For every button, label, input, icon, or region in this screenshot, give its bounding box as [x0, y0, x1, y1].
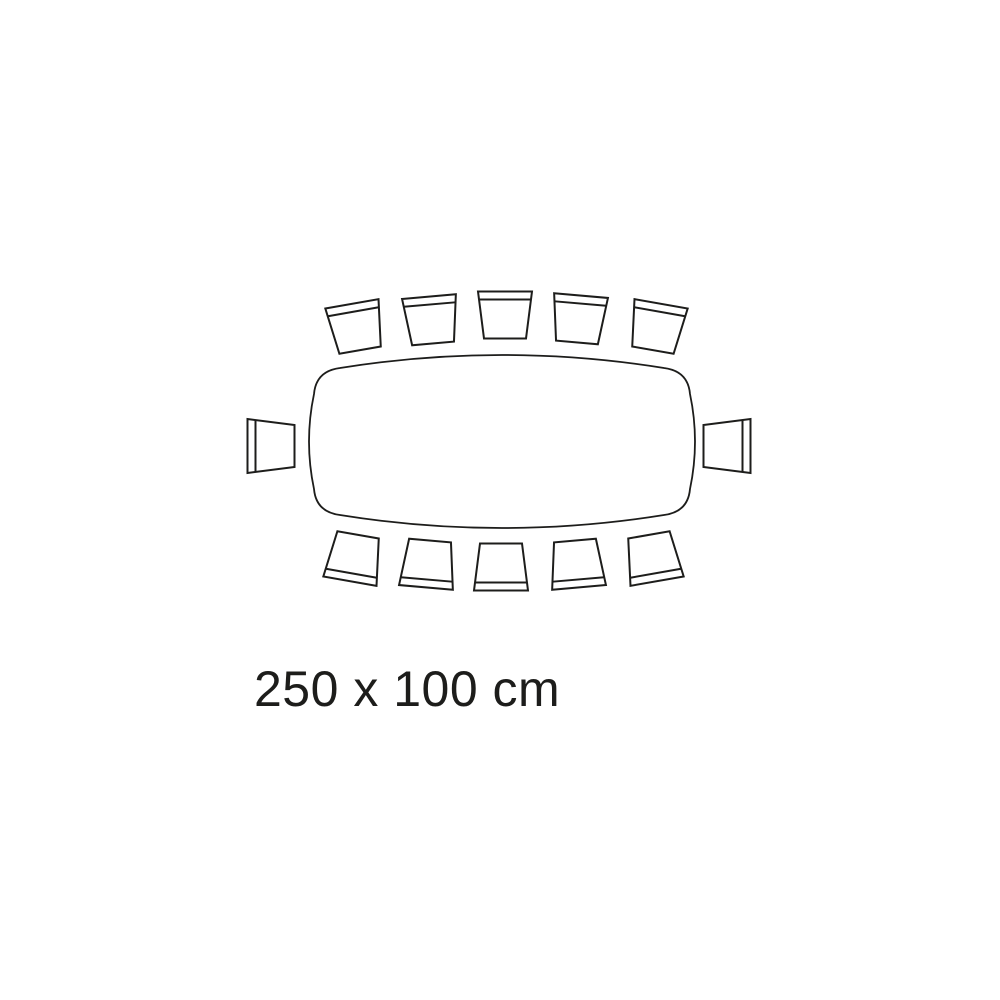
seating-diagram: 250 x 100 cm	[0, 0, 1000, 1000]
chair-right	[704, 419, 751, 473]
dimension-label: 250 x 100 cm	[254, 660, 560, 718]
chair-top-2	[402, 294, 460, 346]
chair-shape-top-3	[478, 292, 532, 339]
chair-shape-bottom-3	[474, 544, 528, 591]
table-top	[309, 355, 695, 528]
chair-bottom-5	[622, 530, 683, 586]
chair-shape-bottom-2	[399, 538, 457, 590]
chair-shape-left	[248, 419, 295, 473]
chair-top-5	[626, 299, 687, 355]
chair-shape-top-2	[402, 294, 460, 346]
chair-top-3	[478, 292, 532, 339]
chair-shape-top-5	[626, 299, 687, 355]
chair-shape-top-4	[550, 293, 608, 345]
chair-top-1	[325, 299, 386, 355]
chair-bottom-2	[399, 538, 457, 590]
chair-shape-right	[704, 419, 751, 473]
chair-bottom-4	[548, 538, 606, 590]
chair-shape-top-1	[325, 299, 386, 355]
chair-bottom-3	[474, 544, 528, 591]
chair-left	[248, 419, 295, 473]
table-seating-svg	[0, 0, 1000, 1000]
chair-top-4	[550, 293, 608, 345]
chair-shape-bottom-4	[548, 538, 606, 590]
chair-shape-bottom-5	[622, 530, 683, 586]
chair-shape-bottom-1	[323, 530, 384, 586]
chair-bottom-1	[323, 530, 384, 586]
